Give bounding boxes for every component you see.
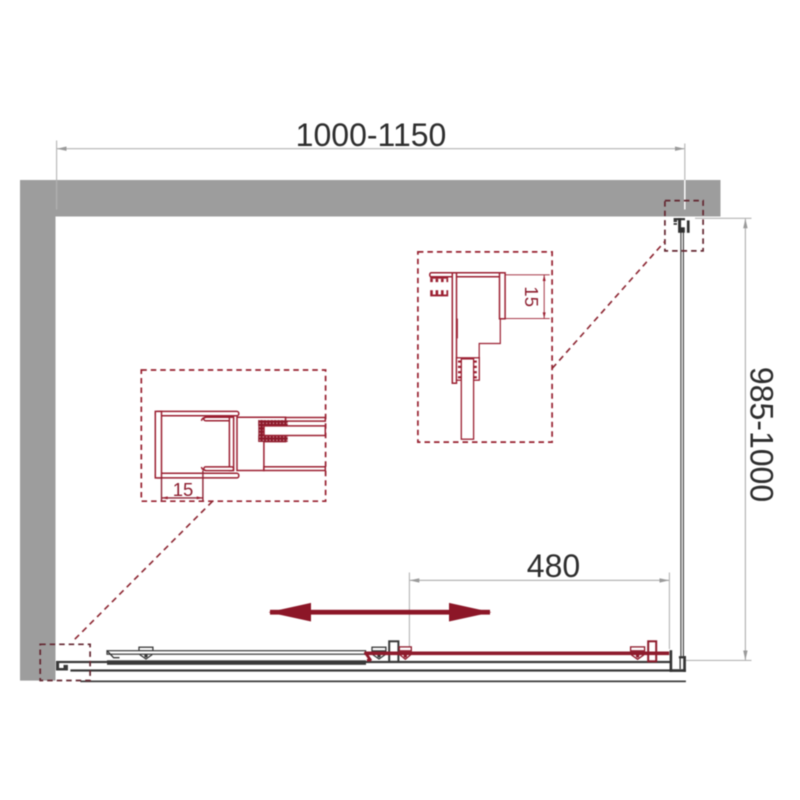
svg-text:480: 480 [527, 548, 580, 584]
svg-text:985-1000: 985-1000 [744, 367, 780, 502]
svg-text:15: 15 [173, 479, 194, 500]
svg-text:15: 15 [521, 286, 542, 307]
svg-text:1000-1150: 1000-1150 [296, 117, 447, 153]
